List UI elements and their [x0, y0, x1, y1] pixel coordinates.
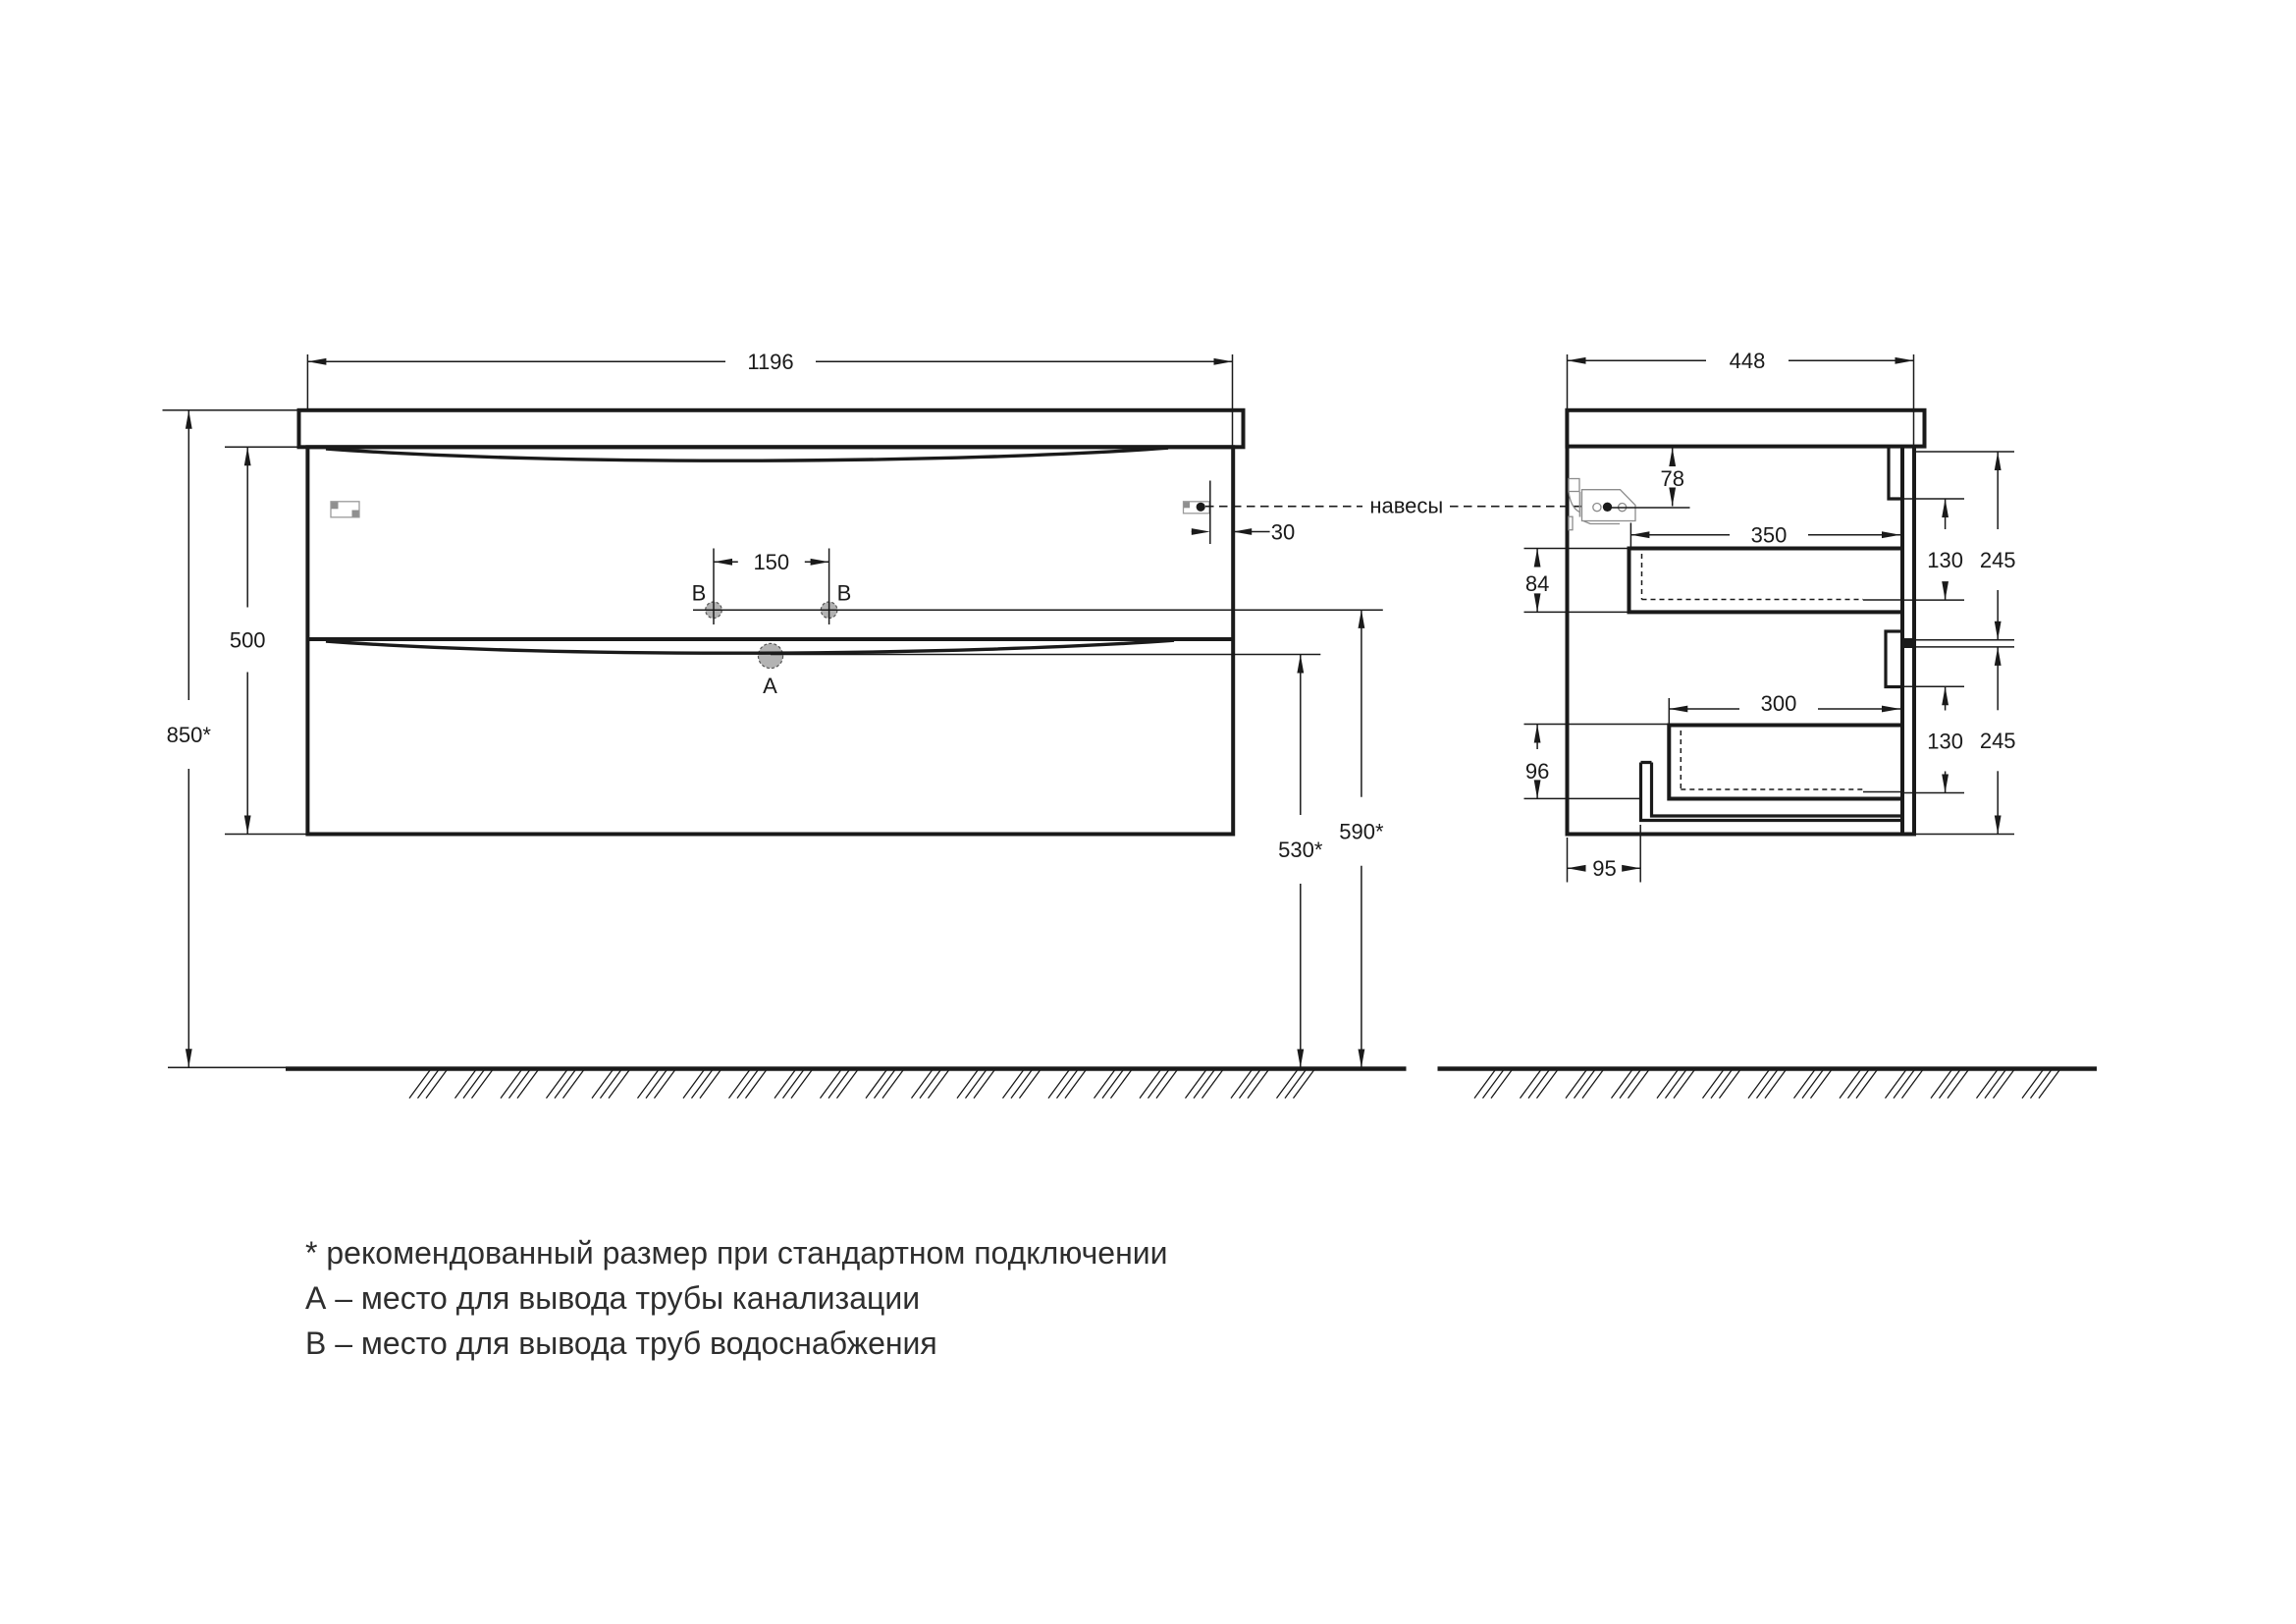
- svg-text:245: 245: [1980, 548, 2016, 572]
- svg-text:150: 150: [753, 550, 789, 574]
- svg-text:В – место для вывода труб водо: В – место для вывода труб водоснабжения: [305, 1326, 937, 1361]
- svg-text:96: 96: [1525, 759, 1549, 784]
- svg-text:130: 130: [1927, 729, 1963, 753]
- svg-text:850*: 850*: [167, 723, 212, 747]
- svg-text:245: 245: [1980, 729, 2016, 753]
- svg-text:навесы: навесы: [1369, 494, 1443, 518]
- svg-text:30: 30: [1271, 519, 1295, 544]
- svg-text:500: 500: [230, 627, 266, 652]
- svg-text:78: 78: [1660, 466, 1683, 491]
- svg-text:530*: 530*: [1278, 838, 1323, 862]
- svg-text:А – место для вывода трубы кан: А – место для вывода трубы канализации: [305, 1280, 920, 1316]
- svg-text:130: 130: [1927, 548, 1963, 572]
- svg-text:350: 350: [1751, 523, 1788, 548]
- svg-text:B: B: [692, 581, 707, 606]
- svg-text:448: 448: [1730, 349, 1766, 373]
- svg-text:B: B: [837, 581, 852, 606]
- svg-text:300: 300: [1761, 691, 1797, 716]
- svg-text:84: 84: [1525, 571, 1549, 596]
- svg-text:1196: 1196: [747, 350, 793, 374]
- svg-text:590*: 590*: [1339, 820, 1384, 844]
- svg-text:A: A: [763, 674, 777, 698]
- svg-text:* рекомендованный размер при с: * рекомендованный размер при стандартном…: [305, 1235, 1168, 1271]
- svg-text:95: 95: [1592, 856, 1616, 881]
